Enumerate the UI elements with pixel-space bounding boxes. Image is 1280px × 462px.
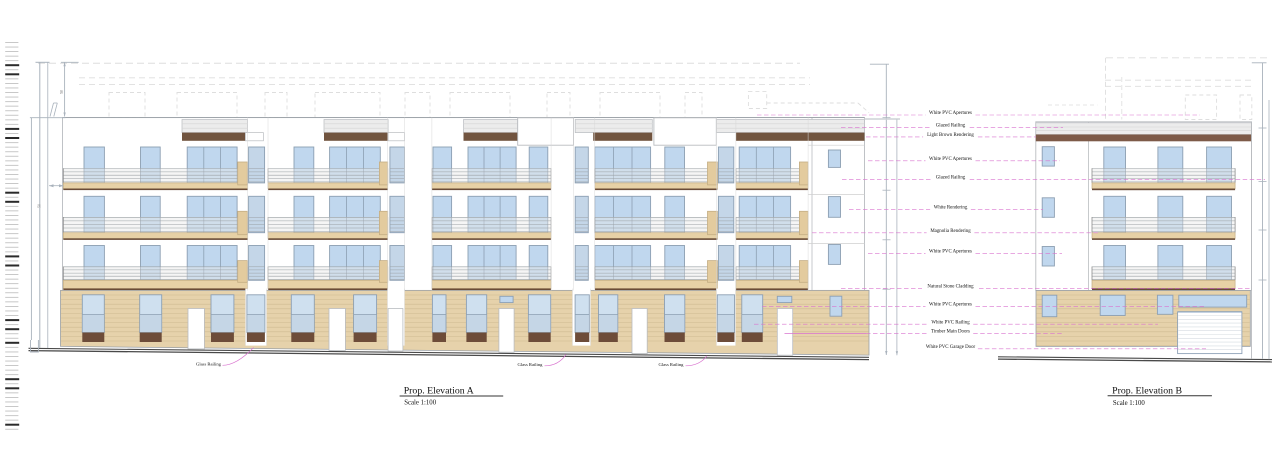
svg-text:Magnolia Rendering: Magnolia Rendering: [930, 229, 971, 234]
svg-text:White PVC Apertures: White PVC Apertures: [929, 157, 972, 162]
svg-text:Glass Railing: Glass Railing: [518, 362, 544, 367]
svg-text:Scale 1:100: Scale 1:100: [404, 399, 437, 406]
svg-text:Glass Railing: Glass Railing: [659, 362, 685, 367]
svg-text:Glazed Railing: Glazed Railing: [936, 176, 966, 181]
svg-text:50: 50: [60, 90, 64, 94]
svg-text:50: 50: [37, 204, 41, 208]
svg-text:White PVC Apertures: White PVC Apertures: [929, 303, 972, 308]
svg-text:Timber Main Doors: Timber Main Doors: [931, 330, 970, 335]
svg-text:White PVC Apertures: White PVC Apertures: [929, 111, 972, 116]
svg-text:Glazed Railing: Glazed Railing: [936, 124, 966, 129]
svg-text:White Rendering: White Rendering: [934, 205, 968, 210]
svg-text:White PVC Garage Door: White PVC Garage Door: [926, 345, 976, 350]
svg-text:Natural Stone Cladding: Natural Stone Cladding: [927, 284, 974, 289]
svg-text:Prop. Elevation B: Prop. Elevation B: [1112, 385, 1182, 396]
svg-text:White PVC Apertures: White PVC Apertures: [929, 249, 972, 254]
svg-text:Scale 1:100: Scale 1:100: [1113, 400, 1146, 407]
svg-text:Light Brown Rendering: Light Brown Rendering: [927, 133, 974, 138]
svg-text:Glass Railing: Glass Railing: [196, 361, 222, 366]
svg-text:Prop. Elevation A: Prop. Elevation A: [404, 385, 474, 396]
svg-text:White PVC Railing: White PVC Railing: [931, 320, 970, 325]
